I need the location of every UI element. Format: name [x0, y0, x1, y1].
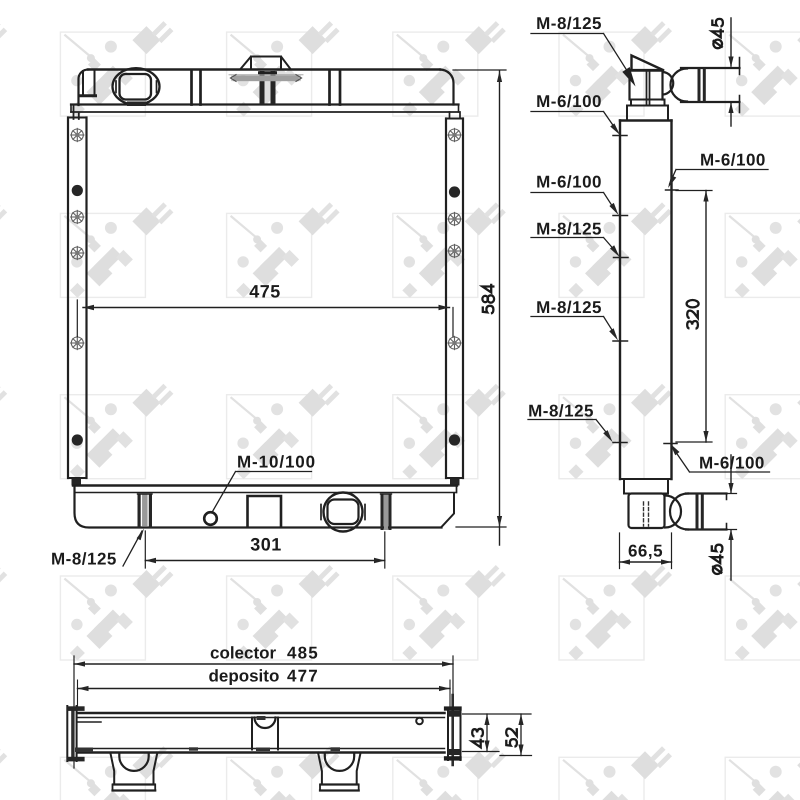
svg-text:M-10/100: M-10/100: [237, 453, 316, 472]
svg-text:301: 301: [250, 535, 282, 555]
svg-text:475: 475: [249, 282, 281, 302]
svg-text:deposito: deposito: [209, 667, 280, 686]
svg-text:M-6/100: M-6/100: [699, 454, 765, 473]
svg-text:M-8/125: M-8/125: [536, 14, 602, 33]
svg-text:M-6/100: M-6/100: [536, 92, 602, 111]
svg-text:477: 477: [287, 667, 319, 686]
svg-text:66,5: 66,5: [628, 542, 663, 561]
svg-text:colector: colector: [210, 644, 277, 663]
svg-text:M-8/125: M-8/125: [536, 220, 602, 239]
svg-text:M-6/100: M-6/100: [700, 151, 766, 170]
svg-text:M-8/125: M-8/125: [528, 402, 594, 421]
svg-text:M-6/100: M-6/100: [536, 173, 602, 192]
svg-text:M-8/125: M-8/125: [51, 550, 117, 569]
svg-text:485: 485: [287, 644, 319, 663]
svg-text:M-8/125: M-8/125: [536, 298, 602, 317]
